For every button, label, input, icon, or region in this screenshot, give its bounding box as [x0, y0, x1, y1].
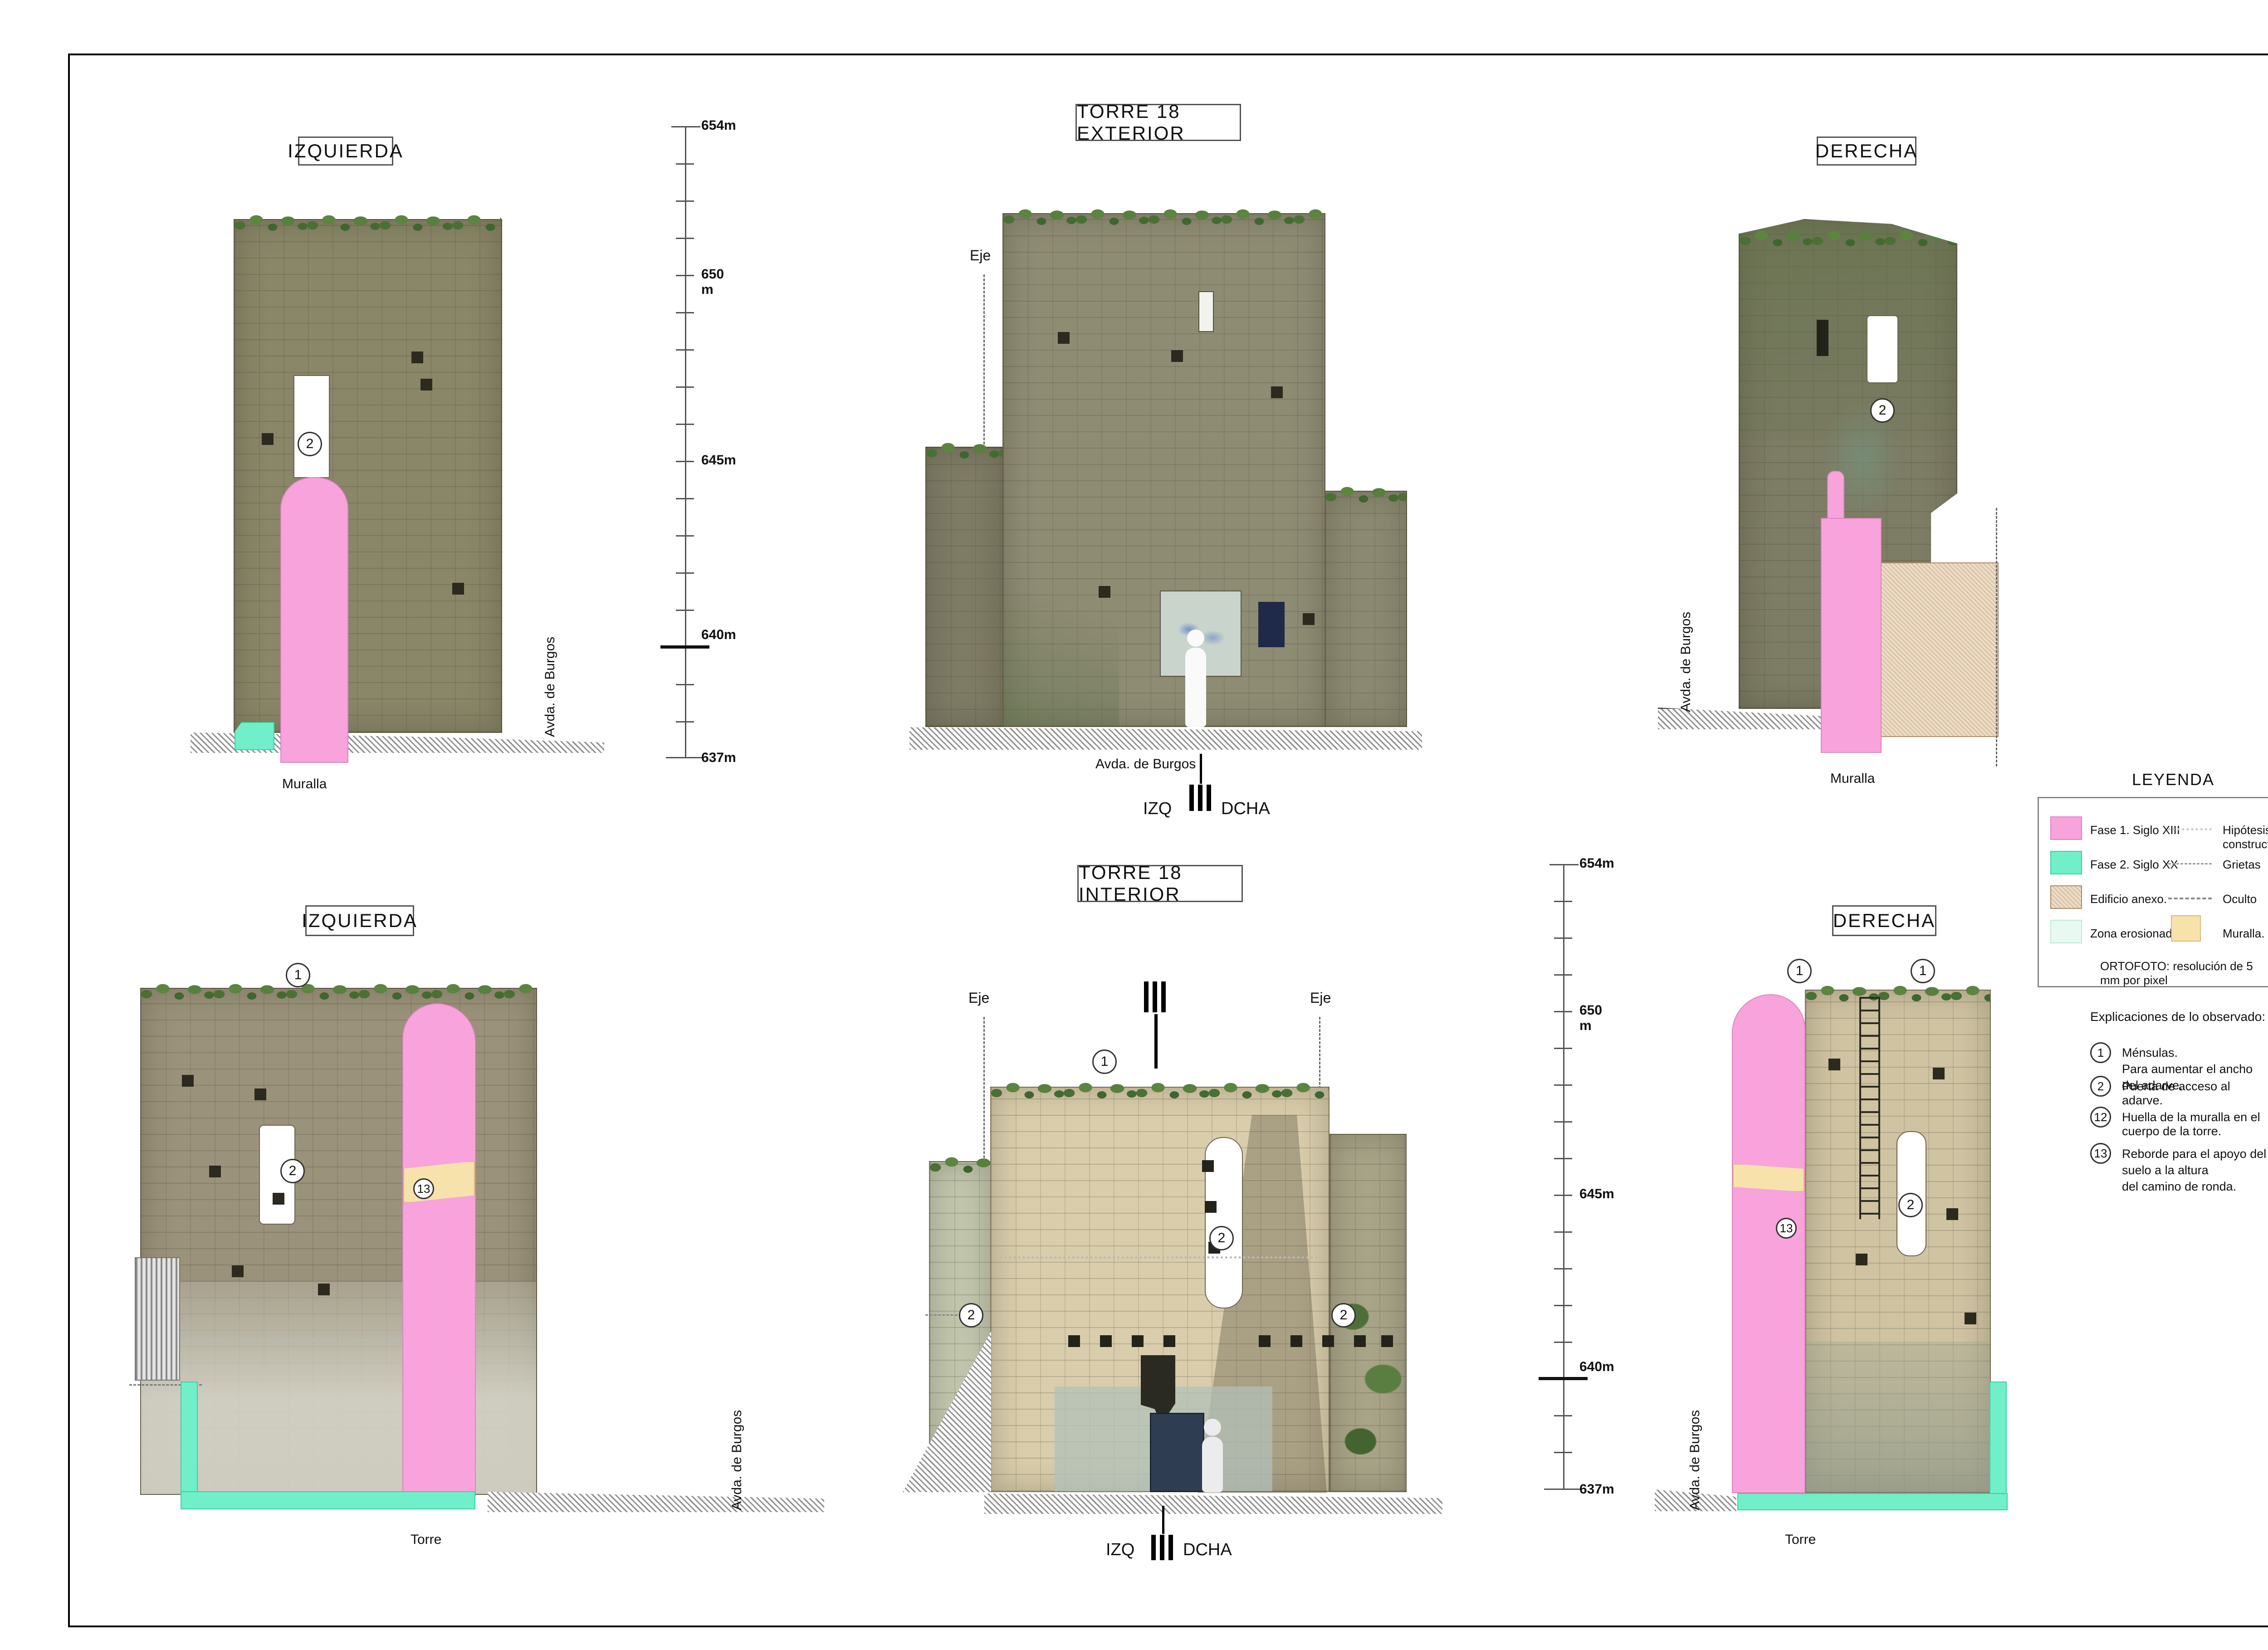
anexo-axis-line	[1996, 508, 1997, 766]
eje-label-right: Eje	[1310, 990, 1331, 1006]
tick-bottom	[1544, 1489, 1582, 1490]
muralla-hypothesis-finger	[1827, 471, 1844, 522]
torre-label: Torre	[411, 1532, 441, 1547]
izq-label: IZQ	[1143, 799, 1172, 819]
exp-text-2: Puerta de acceso al adarve.	[2122, 1079, 2268, 1108]
note-circle-1: 1	[286, 963, 310, 987]
vegetation-top	[1325, 479, 1406, 507]
note-number: 1	[1101, 1054, 1109, 1069]
vegetation-top	[991, 1075, 1329, 1103]
drawing-sheet: IZQUIERDA 2 Muralla Avda. de Burgos 654m…	[0, 0, 2268, 1650]
tick-640-bold	[1539, 1377, 1588, 1380]
view-title-interior: TORRE 18 INTERIOR	[1077, 865, 1243, 902]
window-slit	[1817, 320, 1828, 356]
person-silhouette	[1203, 1419, 1222, 1492]
putlog-holes	[262, 433, 274, 445]
exp-circle-12: 12	[2090, 1107, 2111, 1128]
legend-label: Oculto	[2223, 892, 2257, 906]
elevation-scale-1: 654m 650 m 645m 640m 637m	[669, 126, 732, 758]
muralla-text: Muralla	[1830, 771, 1875, 786]
note-number: 1	[1919, 963, 1927, 979]
person-silhouette	[1185, 630, 1207, 727]
wall-left	[925, 447, 1003, 727]
eje-label-left: Eje	[970, 247, 991, 264]
tick-top	[1549, 864, 1579, 865]
exp-num: 2	[2097, 1079, 2104, 1093]
section-marker-bars	[1144, 981, 1166, 1012]
elev-654: 654m	[1579, 856, 1614, 871]
fase2-patch	[235, 722, 274, 750]
fase2-strip-vertical	[1989, 1382, 2007, 1507]
explanations-title-text: Explicaciones de lo observado:	[2090, 1010, 2265, 1024]
eje-text: Eje	[968, 990, 989, 1006]
moss-patch	[1003, 552, 1119, 726]
izq-text: IZQ	[1143, 799, 1172, 818]
exp-line: Ménsulas.	[2122, 1045, 2268, 1061]
note-number: 13	[417, 1182, 430, 1196]
erosion-lower	[1806, 1342, 1990, 1492]
note-number: 1	[294, 967, 302, 983]
exp-line: Huella de la muralla en el cuerpo de la …	[2122, 1110, 2260, 1138]
dark-sign	[1258, 602, 1285, 647]
muralla-text: Muralla	[282, 776, 327, 791]
view-title-exterior: TORRE 18 EXTERIOR	[1075, 104, 1241, 141]
street-label-vertical: Avda. de Burgos	[1687, 1404, 1703, 1510]
fence-strip	[135, 1257, 180, 1381]
exp-circle-2: 2	[2090, 1076, 2111, 1097]
elev-650: 650 m	[701, 267, 732, 298]
legend-sample-dotted	[2168, 828, 2212, 830]
elev-650: 650 m	[1579, 1003, 1610, 1034]
view-title-izquierda-bottom: IZQUIERDA	[305, 905, 414, 936]
street-text: Avda. de Burgos	[1678, 612, 1693, 712]
muralla-hypothesis-band	[280, 477, 348, 763]
eje-text: Eje	[1310, 990, 1331, 1006]
dcha-label: DCHA	[1183, 1540, 1232, 1560]
vegetation-top	[141, 976, 536, 1004]
note-circle-2: 2	[1898, 1193, 1923, 1217]
torre-label: Torre	[1785, 1532, 1816, 1547]
note-circle-1b: 1	[1911, 959, 1935, 983]
view-title-text: TORRE 18 INTERIOR	[1079, 862, 1242, 905]
note-number: 13	[1780, 1221, 1793, 1235]
elevation-scale-2: 654m 650 m 645m 640m 637m	[1547, 864, 1610, 1490]
street-label-vertical: Avda. de Burgos	[729, 1404, 745, 1510]
legend-label: Muralla.	[2223, 927, 2264, 941]
muralla-hypothesis-band	[1821, 518, 1882, 753]
izq-dcha-marker-line	[1162, 1506, 1164, 1534]
exp-text-13: Reborde para el apoyo del suelo a la alt…	[2122, 1146, 2268, 1195]
exp-num: 12	[2094, 1110, 2107, 1124]
door-opening	[1867, 315, 1898, 383]
putlog-holes	[182, 1075, 194, 1087]
view-title-derecha-bottom: DERECHA	[1832, 905, 1936, 936]
note-number: 2	[1218, 1230, 1226, 1246]
vegetation-top	[1003, 201, 1325, 229]
muralla-label: Muralla	[282, 776, 327, 792]
interior-door	[1150, 1413, 1204, 1492]
note-number: 2	[968, 1308, 975, 1323]
legend-swatch-muralla	[2171, 915, 2201, 942]
dcha-text: DCHA	[1221, 799, 1270, 818]
ivy-overlay	[1330, 1242, 1406, 1491]
legend-title-text: LEYENDA	[2132, 770, 2214, 789]
note-number: 2	[306, 436, 314, 452]
legend-title: LEYENDA	[2132, 770, 2214, 789]
exp-circle-1: 1	[2090, 1042, 2111, 1063]
vegetation-top	[235, 207, 501, 235]
legend-sample-dash-fine	[2168, 863, 2212, 864]
scale-ticks	[1554, 864, 1572, 1490]
torre-text: Torre	[411, 1532, 441, 1547]
legend-label-text: Edificio anexo.	[2090, 892, 2167, 906]
note-circle-13: 13	[413, 1178, 434, 1199]
hipotesis-dotted-line	[1000, 1256, 1318, 1259]
ortofoto-text: ORTOFOTO: resolución de 5 mm por pixel	[2100, 959, 2253, 987]
elev-637: 637m	[1579, 1482, 1614, 1497]
legend-label-text: Zona erosionada.	[2090, 927, 2182, 940]
vegetation-top	[930, 1149, 990, 1177]
street-label-vertical: Avda. de Burgos	[543, 633, 558, 737]
note-circle-2-left: 2	[959, 1303, 983, 1328]
erosion-lower	[141, 1282, 536, 1494]
note-circle-1: 1	[1092, 1050, 1117, 1074]
edificio-anexo-block	[1881, 562, 1999, 737]
legend-label-text: Grietas	[2223, 858, 2261, 871]
note-number: 1	[1796, 963, 1804, 979]
view-title-derecha-top: DERECHA	[1817, 137, 1916, 166]
putlog-hole-column	[1202, 1160, 1214, 1172]
exp-line: Reborde para el apoyo del suelo a la alt…	[2122, 1146, 2268, 1178]
eje-text: Eje	[970, 247, 991, 264]
exp-line: del camino de ronda.	[2122, 1178, 2268, 1195]
exp-text-12: Huella de la muralla en el cuerpo de la …	[2122, 1110, 2268, 1138]
legend-label-text: Oculto	[2223, 892, 2257, 906]
street-text: Avda. de Burgos	[1687, 1410, 1702, 1510]
view-title-text: IZQUIERDA	[288, 140, 404, 162]
street-label-vertical: Avda. de Burgos	[1678, 608, 1694, 712]
explanations-title: Explicaciones de lo observado:	[2090, 1010, 2265, 1024]
tick-top	[671, 126, 700, 127]
view-title-izquierda-top: IZQUIERDA	[298, 137, 393, 166]
legend-label: Fase 1. Siglo XIII	[2090, 823, 2180, 837]
vegetation-top	[1806, 978, 1990, 1006]
view-title-text: DERECHA	[1815, 140, 1918, 162]
note-number: 2	[1879, 403, 1887, 418]
muralla-hypothesis-band	[402, 1003, 476, 1496]
note-number: 2	[1907, 1197, 1915, 1213]
putlog-hole-row	[1068, 1335, 1080, 1347]
note-circle-2: 2	[280, 1159, 305, 1183]
ladder	[1859, 997, 1880, 1219]
elev-645: 645m	[1579, 1186, 1614, 1202]
legend-label: Fase 2. Siglo XX	[2090, 858, 2178, 872]
elev-640: 640m	[701, 627, 736, 643]
note-circle-2-right: 2	[1331, 1303, 1356, 1328]
izq-dcha-marker-line	[1200, 754, 1202, 784]
fase2-strip-vertical	[181, 1382, 198, 1507]
hipotesis-dotted-line	[146, 1339, 400, 1341]
ortho-photo-izquierda-bottom	[140, 988, 537, 1495]
wall-right	[1325, 491, 1407, 727]
legend-sample-dashed	[2168, 898, 2212, 899]
legend-swatch-fase1	[2050, 816, 2082, 840]
putlog-holes	[1058, 332, 1070, 344]
legend-label: Grietas	[2223, 858, 2261, 872]
tick-640-bold	[660, 645, 709, 649]
street-text: Avda. de Burgos	[1095, 757, 1196, 771]
izq-text: IZQ	[1106, 1540, 1134, 1559]
ortho-photo-izquierda-top	[234, 219, 502, 733]
note-circle-13: 13	[1776, 1218, 1797, 1239]
ortofoto-note: ORTOFOTO: resolución de 5 mm por pixel	[2100, 959, 2268, 987]
exp-num: 13	[2094, 1147, 2107, 1161]
legend-label-text: Fase 2. Siglo XX	[2090, 858, 2178, 871]
legend-swatch-erosion	[2050, 920, 2082, 943]
legend-label: Edificio anexo.	[2090, 892, 2167, 906]
view-title-text: DERECHA	[1833, 910, 1936, 932]
legend-label-text: Fase 1. Siglo XIII	[2090, 823, 2180, 837]
view-title-text: IZQUIERDA	[302, 910, 418, 932]
door-opening	[293, 375, 330, 478]
street-text: Avda. de Burgos	[729, 1410, 744, 1510]
scale-ticks	[676, 126, 694, 758]
muralla-hypothesis-band	[1732, 994, 1805, 1493]
ortho-photo-exterior	[1002, 213, 1325, 727]
exp-num: 1	[2097, 1046, 2104, 1060]
elev-637: 637m	[701, 750, 736, 766]
street-text: Avda. de Burgos	[543, 637, 557, 737]
legend-swatch-fase2	[2050, 851, 2082, 874]
note-circle-2: 2	[298, 432, 322, 456]
putlog-holes	[1828, 1059, 1840, 1070]
elev-645: 645m	[701, 453, 736, 468]
note-circle-2: 2	[1870, 398, 1895, 423]
izq-dcha-marker-bars	[1189, 785, 1211, 811]
window-slit	[1198, 291, 1214, 332]
exp-line: Puerta de acceso al adarve.	[2122, 1079, 2230, 1107]
izq-dcha-marker-bars	[1151, 1535, 1173, 1560]
leader-dash-left	[925, 1314, 962, 1316]
dcha-text: DCHA	[1183, 1540, 1232, 1559]
legend-label: Hipótesis constructiva	[2223, 823, 2268, 851]
vegetation-top	[926, 435, 1002, 463]
fase2-strip-bottom	[181, 1491, 475, 1509]
exp-circle-13: 13	[2090, 1143, 2111, 1164]
tick-bottom	[666, 757, 704, 758]
legend-label-text: Hipótesis constructiva	[2223, 823, 2268, 851]
elev-640: 640m	[1579, 1359, 1614, 1375]
legend-swatch-anexo	[2050, 885, 2082, 909]
fase2-strip-bottom	[1737, 1493, 2008, 1510]
izq-label: IZQ	[1106, 1540, 1134, 1560]
street-label: Avda. de Burgos	[1095, 757, 1196, 772]
legend-label: Zona erosionada.	[2090, 927, 2182, 941]
view-title-text: TORRE 18 EXTERIOR	[1077, 101, 1240, 144]
note-circle-2-center: 2	[1209, 1226, 1234, 1250]
dcha-label: DCHA	[1221, 799, 1270, 819]
note-number: 2	[1340, 1308, 1348, 1323]
note-number: 2	[289, 1163, 297, 1179]
torre-text: Torre	[1785, 1532, 1816, 1547]
elev-654: 654m	[701, 118, 736, 133]
legend-label-text: Muralla.	[2223, 927, 2264, 940]
note-circle-1a: 1	[1787, 959, 1812, 983]
ortho-photo-derecha-bottom	[1805, 990, 1991, 1493]
eje-label-left: Eje	[968, 990, 989, 1006]
muralla-label: Muralla	[1830, 771, 1875, 786]
section-marker-line	[1154, 1014, 1158, 1069]
